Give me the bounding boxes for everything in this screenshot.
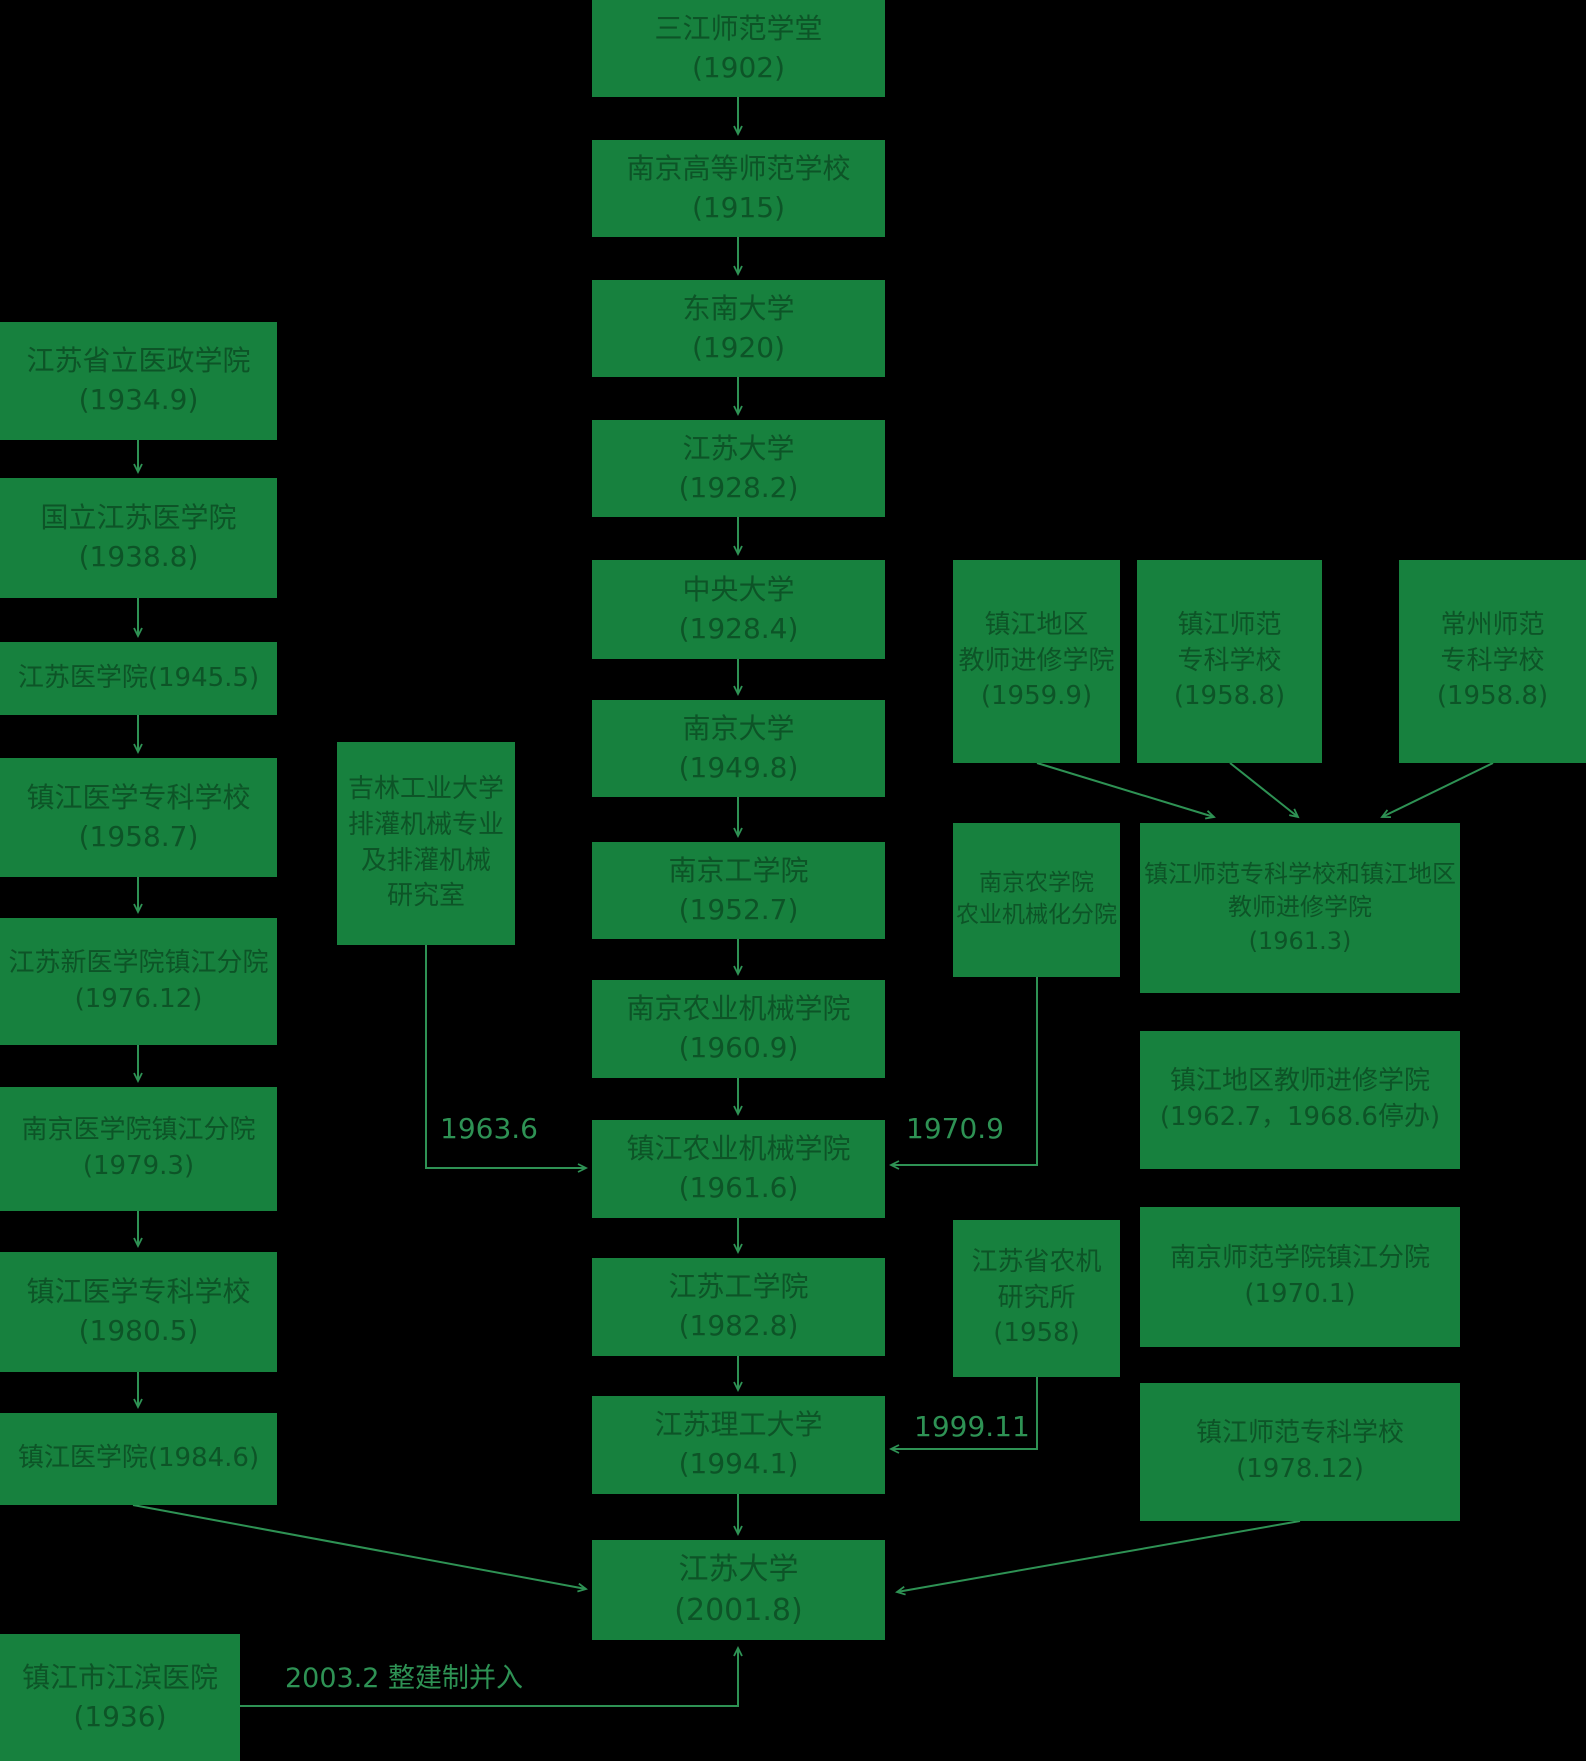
flow-box-text: 南京工学院 xyxy=(592,852,885,891)
label-1999-11: 1999.11 xyxy=(914,1410,1030,1443)
flow-box-text: 镇江市江滨医院 xyxy=(0,1659,240,1698)
flow-box-text: 镇江师范专科学校 xyxy=(1140,1416,1460,1452)
label-1963-6: 1963.6 xyxy=(440,1112,538,1145)
flow-box-central-univ-1928: 中央大学(1928.4) xyxy=(592,560,885,659)
flow-box-jiangsu-univ-sci-tech-1994: 江苏理工大学(1994.1) xyxy=(592,1396,885,1494)
flow-box-zhenjiang-medical-college-1958: 镇江医学专科学校(1958.7) xyxy=(0,758,277,877)
flow-box-text: 专科学校 xyxy=(1137,644,1322,680)
flow-box-zhenjiang-teachers-training-1962: 镇江地区教师进修学院(1962.7，1968.6停办) xyxy=(1140,1031,1460,1169)
flow-box-nanjing-medical-zhenjiang-1979: 南京医学院镇江分院(1979.3) xyxy=(0,1087,277,1211)
flow-box-text: 及排灌机械 xyxy=(337,844,515,880)
flow-box-jiangsu-inst-tech-1982: 江苏工学院(1982.8) xyxy=(592,1258,885,1356)
flow-box-zhenjiang-agri-machinery-1961: 镇江农业机械学院(1961.6) xyxy=(592,1120,885,1218)
flow-box-national-jiangsu-medical-1938: 国立江苏医学院(1938.8) xyxy=(0,478,277,598)
flow-box-jiangsu-univ-1928: 江苏大学(1928.2) xyxy=(592,420,885,517)
flow-box-text: 国立江苏医学院 xyxy=(0,499,277,538)
flow-box-text: 专科学校 xyxy=(1399,644,1586,680)
flow-box-text: 南京农学院 xyxy=(953,868,1120,900)
flow-box-text: 三江师范学堂 xyxy=(592,10,885,49)
flow-box-sanjiang-normal-1902: 三江师范学堂(1902) xyxy=(592,0,885,97)
flow-box-text: 江苏医学院(1945.5) xyxy=(0,661,277,697)
flow-box-text: 南京医学院镇江分院 xyxy=(0,1113,277,1149)
flow-box-zhenjiang-medical-college-1980: 镇江医学专科学校(1980.5) xyxy=(0,1252,277,1372)
flow-box-text: 教师进修学院 xyxy=(953,644,1120,680)
flow-box-jiangsu-medical-admin-1934: 江苏省立医政学院(1934.9) xyxy=(0,322,277,440)
flow-box-text: (1980.5) xyxy=(0,1312,277,1351)
flow-box-text: (1902) xyxy=(592,49,885,88)
flow-box-southeast-univ-1920: 东南大学(1920) xyxy=(592,280,885,377)
flow-box-nanjing-agri-machinery-1960: 南京农业机械学院(1960.9) xyxy=(592,980,885,1078)
label-2003-2: 2003.2 整建制并入 xyxy=(285,1656,523,1695)
flow-box-zhenjiang-jiangbin-hospital-1936: 镇江市江滨医院(1936) xyxy=(0,1634,240,1761)
flow-box-jiangsu-new-medical-zhenjiang-1976: 江苏新医学院镇江分院(1976.12) xyxy=(0,918,277,1045)
flow-box-zhenjiang-teachers-training-1959: 镇江地区教师进修学院(1959.9) xyxy=(953,560,1120,763)
flow-box-text: 农业机械化分院 xyxy=(953,900,1120,932)
edge-l8-final xyxy=(133,1505,586,1589)
flow-box-jilin-tech-irrigation-machinery: 吉林工业大学排灌机械专业及排灌机械研究室 xyxy=(337,742,515,945)
flow-box-zhenjiang-normal-college-1958: 镇江师范专科学校(1958.8) xyxy=(1137,560,1322,763)
flow-box-text: (1915) xyxy=(592,189,885,228)
flow-box-text: (1949.8) xyxy=(592,749,885,788)
flow-box-changzhou-normal-college-1958: 常州师范专科学校(1958.8) xyxy=(1399,560,1586,763)
flow-box-text: (1958.8) xyxy=(1137,679,1322,715)
flow-box-jiangsu-univ-2001: 江苏大学(2001.8) xyxy=(592,1540,885,1640)
flow-box-text: 镇江农业机械学院 xyxy=(592,1130,885,1169)
flow-box-text: 研究室 xyxy=(337,879,515,915)
flow-box-text: 镇江医学院(1984.6) xyxy=(0,1441,277,1477)
edge-rc-r1 xyxy=(1382,763,1493,817)
flow-box-text: (1979.3) xyxy=(0,1149,277,1185)
edge-rb-r1 xyxy=(1230,763,1298,817)
flow-box-text: 江苏理工大学 xyxy=(592,1406,885,1445)
flow-box-text: 江苏工学院 xyxy=(592,1268,885,1307)
flow-box-text: (1934.9) xyxy=(0,381,277,420)
flow-box-zhenjiang-normal-merged-1961: 镇江师范专科学校和镇江地区教师进修学院(1961.3) xyxy=(1140,823,1460,993)
flow-box-nanjing-inst-tech-1952: 南京工学院(1952.7) xyxy=(592,842,885,939)
flow-box-text: (1994.1) xyxy=(592,1445,885,1484)
flow-box-text: 研究所 xyxy=(953,1281,1120,1317)
flow-box-text: (1952.7) xyxy=(592,891,885,930)
flow-box-text: (1961.6) xyxy=(592,1169,885,1208)
flow-box-text: (1970.1) xyxy=(1140,1277,1460,1313)
flow-box-text: 南京农业机械学院 xyxy=(592,990,885,1029)
flow-box-nanjing-normal-zhenjiang-1970: 南京师范学院镇江分院(1970.1) xyxy=(1140,1207,1460,1347)
edge-ra-r1 xyxy=(1037,763,1214,817)
flow-box-text: (1976.12) xyxy=(0,982,277,1018)
flow-box-text: (2001.8) xyxy=(592,1590,885,1631)
flow-box-text: 江苏省农机 xyxy=(953,1245,1120,1281)
flow-box-text: 常州师范 xyxy=(1399,608,1586,644)
flow-box-text: 教师进修学院 xyxy=(1140,891,1460,924)
flow-box-text: 排灌机械专业 xyxy=(337,808,515,844)
flow-box-text: 镇江师范 xyxy=(1137,608,1322,644)
flow-box-text: 江苏新医学院镇江分院 xyxy=(0,946,277,982)
flow-box-text: (1958.7) xyxy=(0,818,277,857)
flow-box-nanjing-univ-1949: 南京大学(1949.8) xyxy=(592,700,885,797)
flow-box-jiangsu-medical-1945: 江苏医学院(1945.5) xyxy=(0,642,277,715)
flow-box-text: 镇江医学专科学校 xyxy=(0,779,277,818)
flow-box-text: (1978.12) xyxy=(1140,1452,1460,1488)
flow-box-text: 中央大学 xyxy=(592,571,885,610)
flow-box-nanjing-higher-normal-1915: 南京高等师范学校(1915) xyxy=(592,140,885,237)
flow-box-text: 镇江地区教师进修学院 xyxy=(1140,1064,1460,1100)
flow-box-text: (1938.8) xyxy=(0,538,277,577)
flow-box-zhenjiang-normal-college-1978: 镇江师范专科学校(1978.12) xyxy=(1140,1383,1460,1521)
flow-box-text: (1959.9) xyxy=(953,679,1120,715)
edge-r4-final xyxy=(897,1521,1300,1592)
flow-box-text: 南京大学 xyxy=(592,710,885,749)
flow-box-text: 吉林工业大学 xyxy=(337,772,515,808)
lineage-flowchart: 三江师范学堂(1902)南京高等师范学校(1915)东南大学(1920)江苏大学… xyxy=(0,0,1586,1761)
flow-box-text: (1936) xyxy=(0,1698,240,1737)
flow-box-text: (1982.8) xyxy=(592,1307,885,1346)
flow-box-nanjing-agri-mechanization-branch: 南京农学院农业机械化分院 xyxy=(953,823,1120,977)
flow-box-text: (1928.4) xyxy=(592,610,885,649)
flow-box-text: (1962.7，1968.6停办) xyxy=(1140,1100,1460,1136)
label-1970-9: 1970.9 xyxy=(906,1112,1004,1145)
flow-box-text: 江苏大学 xyxy=(592,430,885,469)
flow-box-text: (1958.8) xyxy=(1399,679,1586,715)
flow-box-zhenjiang-medical-1984: 镇江医学院(1984.6) xyxy=(0,1413,277,1505)
flow-box-text: 镇江医学专科学校 xyxy=(0,1273,277,1312)
flow-box-text: 江苏大学 xyxy=(592,1549,885,1590)
flow-box-text: (1961.3) xyxy=(1140,925,1460,958)
flow-box-text: (1920) xyxy=(592,329,885,368)
flow-box-text: 镇江师范专科学校和镇江地区 xyxy=(1140,858,1460,891)
flow-box-text: 东南大学 xyxy=(592,290,885,329)
flow-box-text: (1958) xyxy=(953,1316,1120,1352)
flow-box-text: 南京师范学院镇江分院 xyxy=(1140,1241,1460,1277)
flow-box-text: 镇江地区 xyxy=(953,608,1120,644)
flow-box-text: (1928.2) xyxy=(592,469,885,508)
flow-box-text: 南京高等师范学校 xyxy=(592,150,885,189)
flow-box-text: 江苏省立医政学院 xyxy=(0,342,277,381)
flow-box-jiangsu-agri-machinery-inst-1958: 江苏省农机研究所(1958) xyxy=(953,1220,1120,1377)
flow-box-text: (1960.9) xyxy=(592,1029,885,1068)
